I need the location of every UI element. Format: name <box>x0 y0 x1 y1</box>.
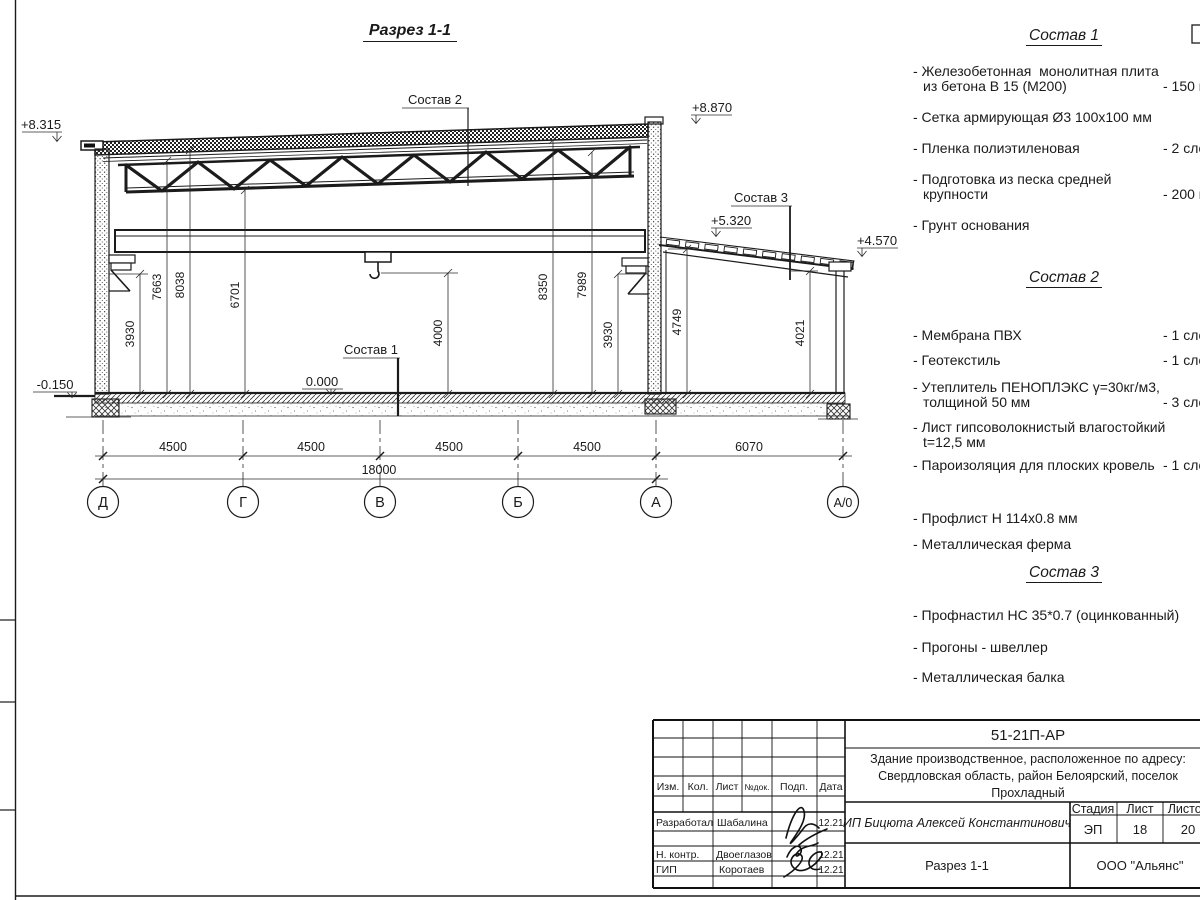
row-role: ГИП <box>656 864 677 876</box>
dim-label: 6070 <box>735 440 763 454</box>
dim-label: 8350 <box>536 273 550 300</box>
vdim-6701: 6701 <box>228 186 249 398</box>
elevation-arrow-icon <box>858 248 867 257</box>
dim-label: 3930 <box>601 321 615 348</box>
item-value: - 3 слоя <box>1163 395 1200 410</box>
composition-list-2: Состав 2 - Мембрана ПВХ- 1 слой - Геотек… <box>913 270 1200 552</box>
list-item: - Железобетонная монолитная плита из бет… <box>913 64 1200 94</box>
composition-title: Состав 3 <box>913 565 1200 580</box>
row-name: Коротаев <box>719 864 765 876</box>
left-wall <box>95 149 109 394</box>
list-item: - Подготовка из песка средней крупности-… <box>913 172 1200 202</box>
list-item: - Профлист Н 114х0.8 мм <box>913 511 1200 526</box>
composition-title: Состав 1 <box>913 28 1200 43</box>
dim-label: 4000 <box>431 319 445 346</box>
list-item: - Профнастил НС 35*0.7 (оцинкованный) <box>913 608 1200 623</box>
elevation-label: +5.320 <box>711 213 751 228</box>
dim-label: 4021 <box>793 319 807 346</box>
doc-number: 51-21П-АР <box>991 727 1065 744</box>
profiled-sheet <box>666 239 853 267</box>
stage-label: Стадия <box>1072 802 1115 816</box>
sheets-label: Листов <box>1168 802 1200 816</box>
dim-label: 7663 <box>150 273 164 300</box>
dim-label: 3930 <box>123 320 137 347</box>
roof-truss <box>118 147 640 192</box>
item-value: - 1 слой <box>1163 458 1200 473</box>
composition-title: Состав 2 <box>913 270 1200 285</box>
leader-label: Состав 3 <box>734 190 788 205</box>
elevation-arrow-icon <box>692 115 701 124</box>
axis-markers: Д Г В Б А А/0 <box>88 487 859 518</box>
crane-hook <box>370 262 379 278</box>
list-item: - Металлическая ферма <box>913 537 1200 552</box>
dim-label: 4749 <box>670 308 684 335</box>
item-value: - 1 слой <box>1163 353 1200 368</box>
corbel-left <box>109 255 135 291</box>
dim-label: 4500 <box>159 440 187 454</box>
dim-label: 18000 <box>362 463 397 477</box>
row-date: 12.21 <box>818 818 843 829</box>
sheets-total: 20 <box>1181 822 1195 837</box>
company-name: ООО "Альянс" <box>1097 858 1184 873</box>
list-item: - Грунт основания <box>913 218 1200 233</box>
corbel-right <box>622 258 648 294</box>
axis-label: Б <box>513 495 523 511</box>
vdim-4749: 4749 <box>668 245 695 398</box>
item-value: - 150 мм <box>1163 79 1200 94</box>
col-data: Дата <box>819 781 842 793</box>
col-kol: Кол. <box>688 781 709 793</box>
axis-label: В <box>375 495 385 511</box>
list-item: - Пароизоляция для плоских кровель- 1 сл… <box>913 458 1200 473</box>
crane-trolley <box>365 252 391 262</box>
leader-label: Состав 2 <box>408 92 462 107</box>
leader-label: Состав 1 <box>344 342 398 357</box>
vdim-7663: 7663 <box>150 157 171 398</box>
axis-label: Д <box>98 495 108 511</box>
project-name-line1: Здание производственное, расположенное п… <box>870 752 1186 766</box>
axis-label: Г <box>239 495 247 511</box>
elevation-label: +8.870 <box>692 100 732 115</box>
col-list: Лист <box>716 781 739 793</box>
axis-label: А <box>651 495 661 511</box>
dim-label: 4500 <box>573 440 601 454</box>
list-item: - Мембрана ПВХ- 1 слой <box>913 328 1200 343</box>
vdim-4021: 4021 <box>790 267 818 398</box>
title-block: 51-21П-АР Здание производственное, распо… <box>653 720 1200 888</box>
annex <box>659 237 855 393</box>
elevation-mark-4570: +4.570 <box>857 233 898 257</box>
stage-value: ЭП <box>1084 822 1103 837</box>
project-name-line2: Свердловская область, район Белоярский, … <box>878 769 1178 783</box>
stamp-header-row: Изм. Кол. Лист №док. Подп. Дата <box>657 781 843 793</box>
row-role: Н. контр. <box>656 849 699 861</box>
right-wall <box>648 122 661 394</box>
elevation-label: 0.000 <box>306 374 339 389</box>
elevation-arrow-icon <box>712 228 721 237</box>
row-name: Шабалина <box>717 817 768 829</box>
crane-beam <box>115 230 645 278</box>
dim-label: 8038 <box>173 271 187 298</box>
elevation-label: +8.315 <box>21 117 61 132</box>
item-value: - 1 слой <box>1163 328 1200 343</box>
sheet-title: Разрез 1-1 <box>925 858 989 873</box>
row-date: 12.21 <box>818 865 843 876</box>
item-value: - 2 слоя <box>1163 141 1200 156</box>
project-name-line3: Прохладный <box>991 786 1064 800</box>
truss-diagonals <box>126 147 630 191</box>
list-item: - Металлическая балка <box>913 670 1200 685</box>
list-item: - Пленка полиэтиленовая- 2 слоя <box>913 141 1200 156</box>
elevation-mark-5320: +5.320 <box>711 213 752 237</box>
sheet-label: Лист <box>1126 802 1153 816</box>
list-item: - Геотекстиль- 1 слой <box>913 353 1200 368</box>
composition-list-1: Состав 1 - Железобетонная монолитная пли… <box>913 28 1200 233</box>
vdim-3930-right: 3930 <box>601 270 648 398</box>
col-podp: Подп. <box>780 781 808 793</box>
item-value: - 200 мм <box>1163 187 1200 202</box>
row-role: Разработал <box>656 817 713 829</box>
row-name: Двоеглазов <box>716 849 772 861</box>
elevation-mark-8315: +8.315 <box>21 117 62 142</box>
dim-label: 4500 <box>297 440 325 454</box>
elevation-arrow-icon <box>53 132 62 142</box>
dim-label: 6701 <box>228 281 242 308</box>
elevation-mark-0000: 0.000 <box>302 374 343 395</box>
elevation-label: +4.570 <box>857 233 897 248</box>
dim-label: 4500 <box>435 440 463 454</box>
elevation-label: -0.150 <box>37 377 74 392</box>
col-ndok: №док. <box>745 782 770 792</box>
sheet-number: 18 <box>1133 822 1147 837</box>
vdim-8038: 8038 <box>173 146 194 398</box>
cap-plate <box>84 144 95 148</box>
floor-slab <box>54 393 850 416</box>
main-roof <box>81 117 663 162</box>
col-izm: Изм. <box>657 781 680 793</box>
axis-label: А/0 <box>834 496 853 510</box>
elevation-mark-m0150: -0.150 <box>33 377 77 398</box>
list-item: - Лист гипсоволокнистый влагостойкий t=1… <box>913 420 1200 450</box>
list-item: - Утеплитель ПЕНОПЛЭКС γ=30кг/м3, толщин… <box>913 380 1200 410</box>
leader-sostav3: Состав 3 <box>731 190 792 280</box>
dim-label: 7989 <box>575 271 589 298</box>
annex-column <box>829 262 851 393</box>
vdim-7989: 7989 <box>575 148 596 398</box>
composition-list-3: Состав 3 - Профнастил НС 35*0.7 (оцинков… <box>913 565 1200 685</box>
list-item: - Сетка армирующая Ø3 100х100 мм <box>913 110 1200 125</box>
elevation-mark-8870: +8.870 <box>691 100 732 124</box>
list-item: - Прогоны - швеллер <box>913 640 1200 655</box>
client-name: ИП Бицюта Алексей Константинович <box>843 816 1072 830</box>
drawing-sheet: Разрез 1-1 <box>0 0 1200 900</box>
vdim-4000: 4000 <box>381 269 458 398</box>
